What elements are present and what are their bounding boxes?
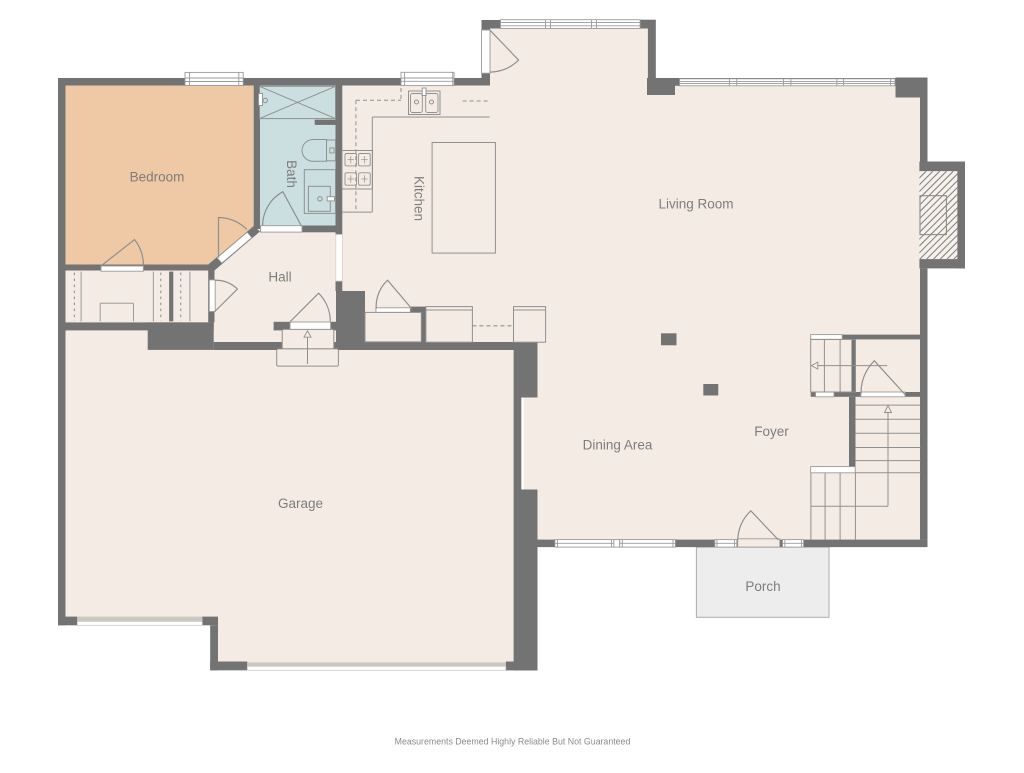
svg-text:Bath: Bath: [284, 160, 299, 188]
svg-text:Foyer: Foyer: [754, 424, 789, 439]
svg-text:Bedroom: Bedroom: [130, 170, 185, 185]
svg-text:Measurements Deemed Highly Rel: Measurements Deemed Highly Reliable But …: [395, 737, 631, 747]
svg-text:Dining Area: Dining Area: [583, 438, 653, 453]
svg-text:Living Room: Living Room: [658, 197, 733, 212]
svg-text:Garage: Garage: [278, 496, 323, 511]
svg-text:Kitchen: Kitchen: [412, 176, 427, 221]
svg-text:Porch: Porch: [745, 579, 780, 594]
svg-text:Hall: Hall: [268, 270, 291, 285]
